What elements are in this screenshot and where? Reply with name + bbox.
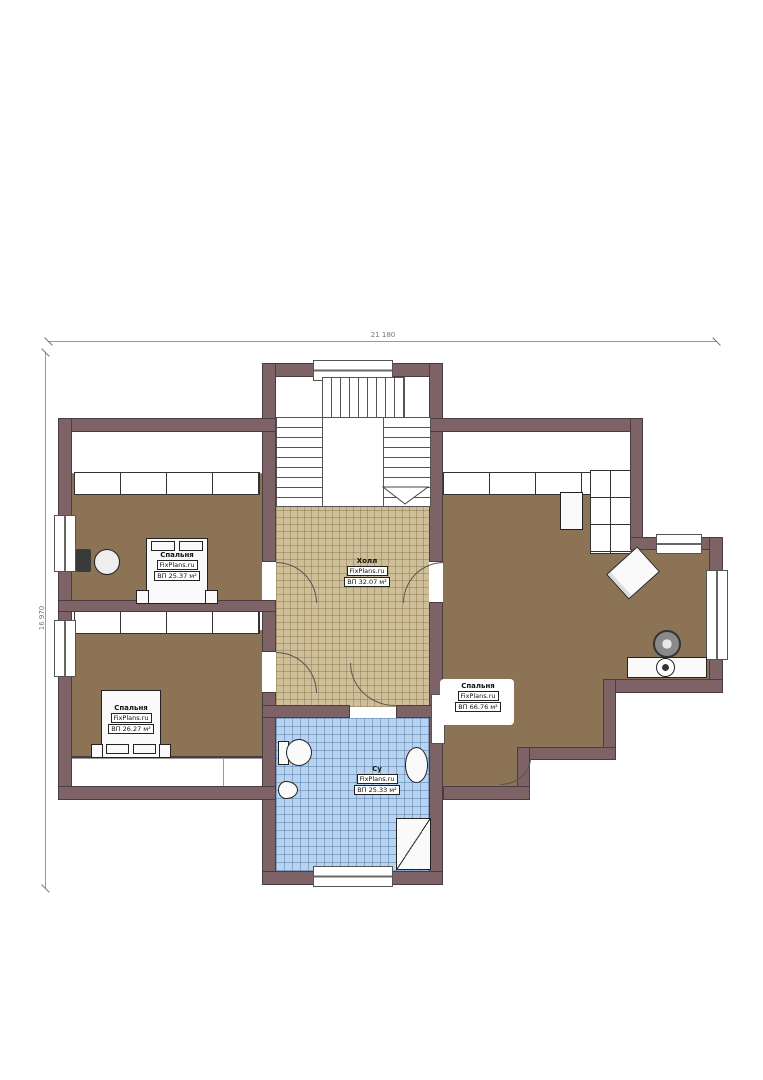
nightstand — [205, 590, 218, 604]
attic-band-bottom-left — [72, 758, 262, 787]
closet-row-bedroom-top-left — [74, 472, 260, 495]
wall-exterior-bottom-left — [58, 786, 276, 800]
window-left-2 — [54, 620, 76, 677]
room-watermark: FixPlans.ru — [357, 774, 398, 784]
plant-bedroom-right — [653, 630, 681, 658]
room-watermark: FixPlans.ru — [157, 560, 198, 570]
wall-main-top-right — [429, 418, 643, 432]
attic-band-divider — [223, 758, 224, 786]
stool-bedroom-right — [656, 658, 675, 677]
room-area: ВП 26.27 м² — [108, 724, 154, 734]
wall-mid-bottom — [517, 747, 616, 760]
stair-left-flight — [276, 417, 324, 507]
wall-wing-bottom — [603, 679, 723, 693]
room-watermark: FixPlans.ru — [458, 691, 499, 701]
wardrobe-bedroom-right — [590, 470, 632, 554]
chair-bedroom-top-left — [94, 549, 120, 575]
room-area: ВП 25.37 м² — [154, 571, 200, 581]
dimension-label-top: 21 180 — [353, 331, 413, 339]
closet-row-bedroom-bottom-left — [74, 611, 260, 634]
room-name: Су — [372, 765, 382, 773]
window-wing-top — [656, 534, 702, 554]
floor-plan: Спальня FixPlans.ru ВП 25.37 м² Спальня … — [0, 0, 763, 1080]
pillow — [151, 541, 175, 551]
attic-band-top-right — [443, 432, 630, 474]
nightstand — [159, 744, 171, 758]
pillow — [106, 744, 129, 754]
nightstand — [91, 744, 103, 758]
wall-bottom-strip — [443, 786, 530, 800]
attic-band-top-left — [72, 432, 262, 474]
room-name: Холл — [357, 557, 377, 565]
room-label-bedroom-bottom-left: Спальня FixPlans.ru ВП 26.27 м² — [103, 704, 159, 734]
shower-cabin — [396, 818, 431, 870]
stair-direction-arrow — [382, 486, 429, 506]
stair-top-run — [322, 377, 405, 419]
room-label-bathroom: Су FixPlans.ru ВП 25.33 м² — [342, 765, 412, 795]
room-name: Спальня — [114, 704, 148, 712]
nightstand — [136, 590, 149, 604]
toilet-bowl — [286, 739, 312, 766]
wall-main-top-left — [58, 418, 276, 432]
room-label-bedroom-right: Спальня FixPlans.ru ВП 66.76 м² — [444, 682, 512, 712]
shelf-bedroom-right — [560, 492, 583, 530]
desk-bedroom-top-left — [76, 549, 91, 572]
room-watermark: FixPlans.ru — [111, 713, 152, 723]
room-label-bedroom-top-left: Спальня FixPlans.ru ВП 25.37 м² — [148, 551, 206, 581]
room-area: ВП 66.76 м² — [455, 702, 501, 712]
room-watermark: FixPlans.ru — [347, 566, 388, 576]
pillow — [133, 744, 156, 754]
room-name: Спальня — [160, 551, 194, 559]
wall-hall-bath-left — [262, 705, 350, 718]
dimension-label-left: 16 970 — [38, 588, 46, 648]
window-tower-bottom — [313, 866, 393, 887]
wall-hall-left-upper — [262, 363, 276, 562]
room-name: Спальня — [461, 682, 495, 690]
pillow — [179, 541, 203, 551]
room-label-hall: Холл FixPlans.ru ВП 32.07 м² — [334, 557, 400, 587]
room-area: ВП 25.33 м² — [354, 785, 400, 795]
wall-hall-right-upper — [429, 363, 443, 562]
stair-well-opening — [322, 417, 384, 507]
window-left-1 — [54, 515, 76, 572]
room-area: ВП 32.07 м² — [344, 577, 390, 587]
window-wing-right — [706, 570, 728, 660]
dimension-line-top — [48, 341, 717, 342]
wall-right-upper — [630, 418, 643, 550]
